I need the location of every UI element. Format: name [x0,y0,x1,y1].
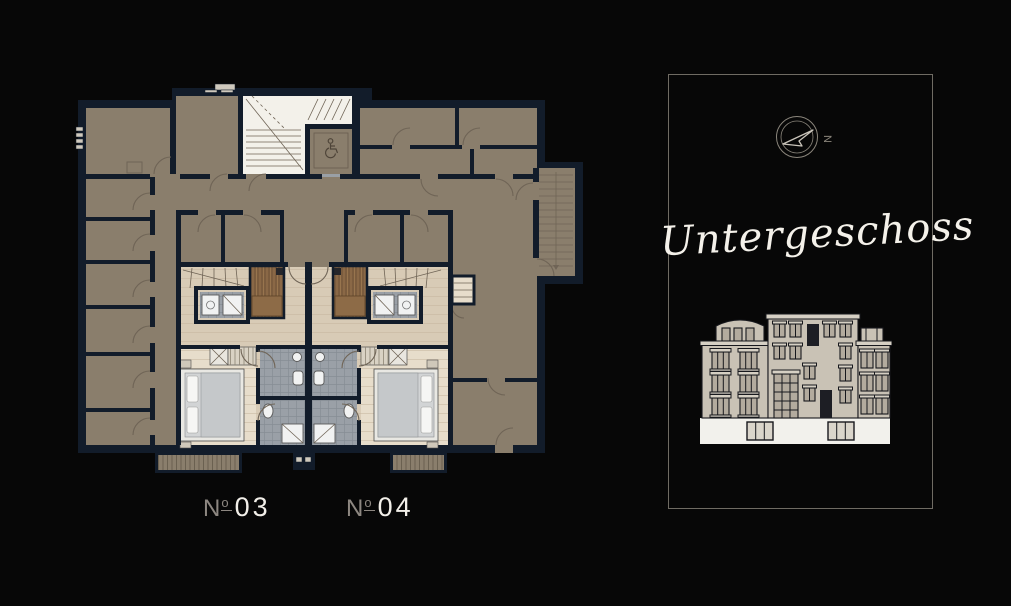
facade-center-tower [766,314,860,418]
basement-level-highlight [700,418,890,444]
north-arrow-icon [783,130,813,146]
facade-right-wing [856,328,892,418]
facade-entrance-door [772,370,800,418]
compass-north-letter: N [821,135,833,143]
building-elevation [700,312,892,444]
page: No03 No04 N Untergeschoss [0,0,1011,606]
facade-left-wing [700,320,770,418]
compass-icon: N [0,0,1011,606]
